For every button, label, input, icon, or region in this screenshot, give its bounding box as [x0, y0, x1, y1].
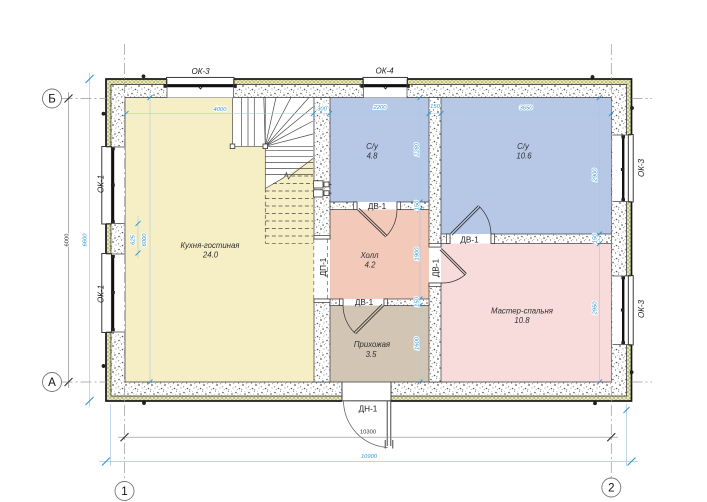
svg-text:4.8: 4.8: [367, 152, 379, 161]
svg-text:2280: 2280: [415, 142, 421, 157]
svg-text:С/у: С/у: [366, 142, 379, 151]
svg-text:ДВ-1: ДВ-1: [432, 258, 441, 277]
svg-text:2: 2: [608, 483, 614, 495]
svg-text:ДН-1: ДН-1: [359, 405, 378, 414]
svg-text:6600: 6600: [83, 233, 89, 247]
svg-text:24.0: 24.0: [202, 251, 219, 260]
svg-text:150: 150: [415, 200, 421, 210]
svg-text:150: 150: [593, 233, 599, 243]
svg-text:ОК-3: ОК-3: [191, 67, 210, 76]
svg-text:ДВ-1: ДВ-1: [460, 236, 479, 245]
svg-text:3650: 3650: [520, 106, 534, 112]
svg-text:10.8: 10.8: [514, 316, 530, 325]
svg-text:4.2: 4.2: [365, 261, 377, 270]
svg-text:625: 625: [131, 234, 137, 244]
svg-text:300: 300: [317, 107, 327, 113]
svg-text:10.6: 10.6: [516, 152, 532, 161]
svg-text:ОК-1: ОК-1: [97, 175, 106, 193]
svg-text:Прихожая: Прихожая: [354, 340, 391, 349]
svg-text:Мастер-спальня: Мастер-спальня: [491, 307, 554, 316]
svg-text:ДВ-1: ДВ-1: [368, 202, 387, 211]
svg-text:150: 150: [430, 104, 440, 110]
svg-text:ДП-1: ДП-1: [319, 257, 328, 276]
svg-text:10300: 10300: [360, 430, 376, 436]
svg-text:Кухня-гостиная: Кухня-гостиная: [181, 241, 241, 250]
svg-text:2950: 2950: [593, 301, 599, 316]
svg-text:150: 150: [415, 296, 421, 306]
svg-text:1600: 1600: [415, 336, 421, 350]
svg-text:ОК-3: ОК-3: [637, 158, 646, 177]
svg-text:С/у: С/у: [517, 142, 530, 151]
svg-text:6000: 6000: [65, 234, 71, 247]
svg-text:1: 1: [121, 486, 127, 498]
svg-text:А: А: [48, 377, 56, 389]
svg-text:Б: Б: [48, 94, 56, 106]
svg-text:ОК-4: ОК-4: [375, 67, 394, 76]
svg-text:10900: 10900: [361, 454, 378, 460]
svg-text:Холл: Холл: [360, 251, 380, 260]
svg-text:ОК-1: ОК-1: [97, 285, 106, 303]
svg-text:3.5: 3.5: [366, 350, 378, 359]
svg-text:6000: 6000: [142, 233, 148, 247]
svg-text:4000: 4000: [214, 107, 228, 113]
svg-text:ДВ-1: ДВ-1: [355, 298, 374, 307]
svg-text:1900: 1900: [415, 247, 421, 261]
svg-text:2200: 2200: [373, 105, 388, 111]
svg-text:ОК-3: ОК-3: [637, 299, 646, 318]
svg-text:2900: 2900: [593, 168, 599, 183]
